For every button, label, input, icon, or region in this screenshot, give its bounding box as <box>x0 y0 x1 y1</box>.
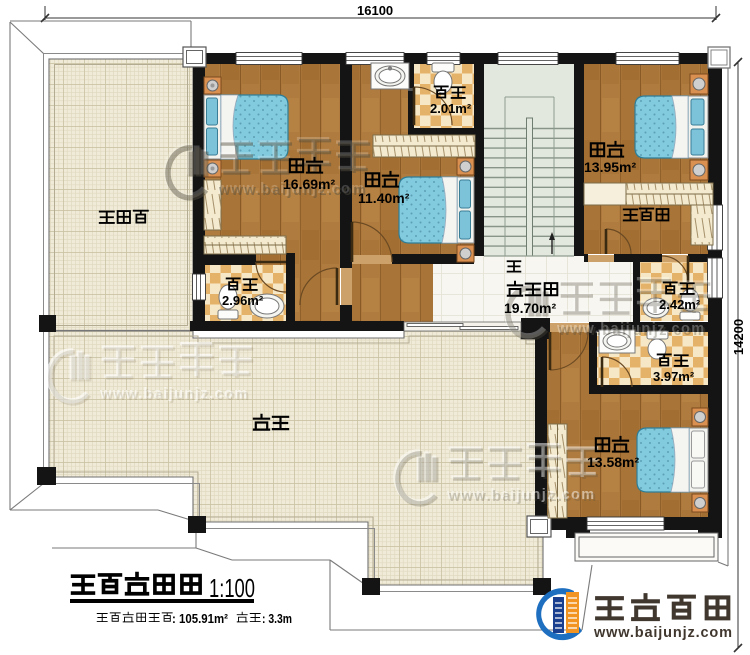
svg-text:2.96m²: 2.96m² <box>222 293 264 308</box>
svg-text:2.42m²: 2.42m² <box>659 297 701 312</box>
svg-text:13.95m²: 13.95m² <box>584 159 636 175</box>
svg-text:11.40m²: 11.40m² <box>358 190 410 206</box>
svg-text:3.97m²: 3.97m² <box>653 369 695 384</box>
svg-text:: 3.3m: : 3.3m <box>262 611 292 626</box>
svg-text:1:100: 1:100 <box>209 573 255 603</box>
svg-text:www.baijunjz.com: www.baijunjz.com <box>593 625 733 641</box>
svg-text:16.69m²: 16.69m² <box>283 176 335 192</box>
svg-text:14200: 14200 <box>731 319 746 355</box>
svg-text:2.01m²: 2.01m² <box>430 101 472 116</box>
svg-text:13.58m²: 13.58m² <box>587 454 639 470</box>
svg-text:19.70m²: 19.70m² <box>504 300 556 316</box>
svg-text:: 105.91m²: : 105.91m² <box>172 611 229 626</box>
svg-text:16100: 16100 <box>357 3 393 18</box>
